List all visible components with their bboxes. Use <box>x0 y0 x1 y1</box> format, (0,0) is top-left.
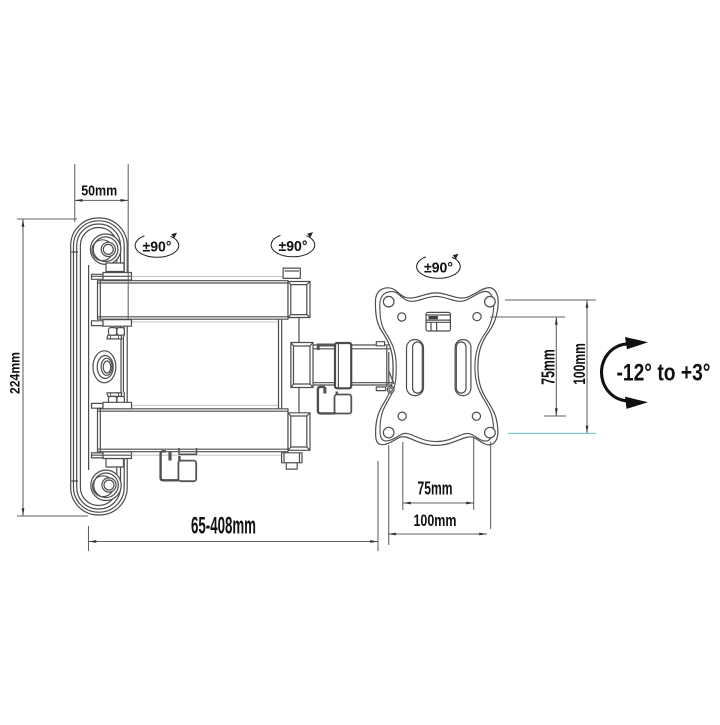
svg-text:224mm: 224mm <box>6 352 22 394</box>
svg-text:65-408mm: 65-408mm <box>191 513 256 540</box>
svg-text:75mm: 75mm <box>538 349 558 385</box>
svg-text:100mm: 100mm <box>414 511 457 530</box>
svg-text:-12° to +3°: -12° to +3° <box>617 360 711 387</box>
svg-text:100mm: 100mm <box>570 343 589 385</box>
svg-text:50mm: 50mm <box>81 183 117 200</box>
svg-text:75mm: 75mm <box>418 479 453 499</box>
